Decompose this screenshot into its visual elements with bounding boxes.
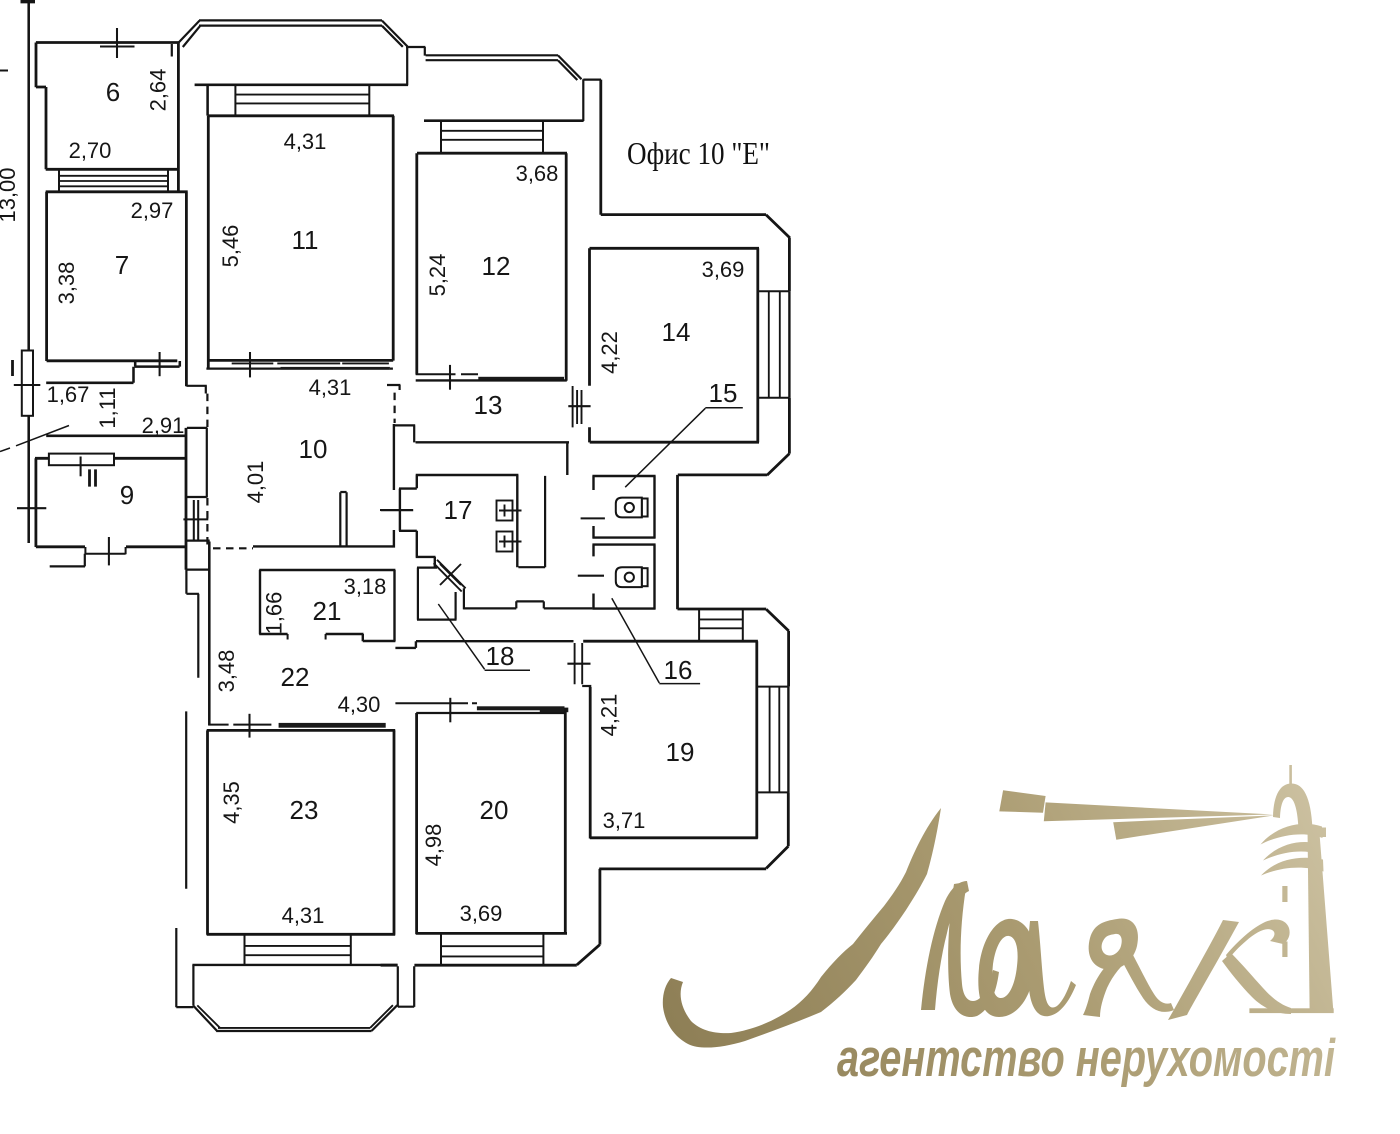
svg-text:12: 12 [482, 251, 511, 281]
svg-text:3,68: 3,68 [516, 161, 559, 186]
svg-text:3,69: 3,69 [702, 257, 745, 282]
svg-text:23: 23 [290, 795, 319, 825]
svg-text:2,91: 2,91 [142, 413, 185, 438]
svg-text:3,18: 3,18 [344, 574, 387, 599]
svg-text:5,46: 5,46 [218, 225, 243, 268]
svg-text:4,01: 4,01 [243, 461, 268, 504]
svg-text:4,31: 4,31 [309, 375, 352, 400]
svg-text:18: 18 [486, 641, 515, 671]
svg-text:11: 11 [292, 225, 319, 255]
svg-text:17: 17 [444, 495, 473, 525]
svg-text:3,69: 3,69 [460, 901, 503, 926]
svg-text:1,66: 1,66 [262, 592, 287, 635]
svg-text:22: 22 [281, 662, 310, 692]
svg-text:2,70: 2,70 [69, 138, 112, 163]
svg-text:1,67: 1,67 [47, 382, 90, 407]
svg-text:13: 13 [474, 390, 503, 420]
svg-text:7: 7 [115, 250, 129, 280]
svg-text:6: 6 [106, 77, 120, 107]
svg-text:агентство нерухомості: агентство нерухомості [837, 1029, 1336, 1088]
svg-text:Офис 10 "Е": Офис 10 "Е" [627, 135, 770, 171]
svg-text:2,64: 2,64 [146, 69, 171, 112]
svg-text:4,98: 4,98 [421, 824, 446, 867]
svg-text:1,11: 1,11 [95, 387, 120, 428]
svg-text:21: 21 [313, 596, 342, 626]
svg-text:13,00: 13,00 [0, 167, 20, 222]
svg-text:4,21: 4,21 [597, 694, 622, 737]
svg-text:4,31: 4,31 [282, 903, 325, 928]
svg-text:4,31: 4,31 [284, 129, 327, 154]
svg-text:4,35: 4,35 [219, 781, 244, 824]
svg-text:10: 10 [299, 434, 328, 464]
svg-text:16: 16 [664, 655, 693, 685]
svg-text:3,48: 3,48 [214, 650, 239, 693]
svg-text:5,24: 5,24 [425, 254, 450, 297]
svg-text:4,22: 4,22 [597, 331, 622, 374]
svg-text:4,30: 4,30 [338, 692, 381, 717]
svg-text:3,71: 3,71 [603, 808, 646, 833]
svg-text:9: 9 [120, 480, 134, 510]
svg-text:3,38: 3,38 [54, 262, 79, 305]
svg-text:15: 15 [709, 378, 738, 408]
svg-text:20: 20 [480, 795, 509, 825]
svg-text:14: 14 [662, 317, 691, 347]
svg-text:19: 19 [666, 737, 695, 767]
svg-text:2,97: 2,97 [131, 198, 174, 223]
